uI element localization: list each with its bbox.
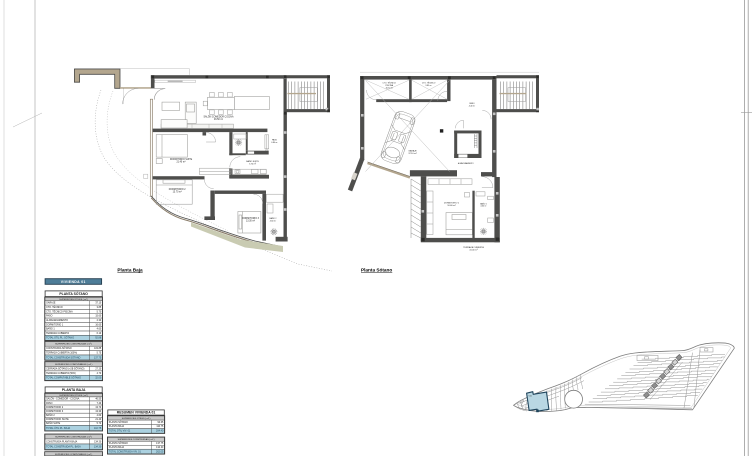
svg-text:TOTAL CONSTRUIDA PL. BAJA: TOTAL CONSTRUIDA PL. BAJA [46, 446, 81, 449]
svg-text:TERRAZA CUBIERTA (100%): TERRAZA CUBIERTA (100%) [46, 352, 77, 355]
svg-text:SALÓN COMEDOR COCINA: SALÓN COMEDOR COCINA [204, 116, 234, 119]
svg-text:DORMITORIO SUITE: DORMITORIO SUITE [170, 159, 193, 161]
svg-text:7.40: 7.40 [97, 403, 102, 405]
svg-text:3.85 m²: 3.85 m² [425, 84, 432, 87]
svg-text:16.60 m²: 16.60 m² [447, 204, 456, 207]
svg-text:GARAJE: GARAJE [46, 302, 56, 305]
svg-text:37.10 m²: 37.10 m² [408, 152, 417, 155]
svg-text:92.88: 92.88 [95, 337, 102, 340]
svg-text:110.75: 110.75 [94, 427, 102, 430]
svg-text:2.30: 2.30 [97, 320, 102, 322]
svg-text:46.50 m²: 46.50 m² [214, 118, 223, 121]
svg-text:41.00 m²: 41.00 m² [469, 249, 478, 252]
svg-text:SUPERFICIES CONSTRUIDAS ( m² ): SUPERFICIES CONSTRUIDAS ( m² ) [55, 343, 92, 346]
svg-text:BAÑO SUITE: BAÑO SUITE [46, 422, 61, 425]
svg-text:13.70 m²: 13.70 m² [173, 191, 182, 194]
svg-text:TOTAL ÚTIL PL. SÓTANO: TOTAL ÚTIL PL. SÓTANO [46, 337, 74, 340]
svg-text:262.05: 262.05 [156, 450, 164, 453]
svg-text:SUPERFICIES CONSTRUIDAS ( m² ): SUPERFICIES CONSTRUIDAS ( m² ) [55, 436, 92, 439]
svg-text:4.40 m²: 4.40 m² [469, 104, 476, 107]
svg-text:PLANTA SÓTANO: PLANTA SÓTANO [59, 291, 88, 296]
svg-text:4.60 m²: 4.60 m² [270, 219, 277, 222]
svg-text:27.20: 27.20 [95, 368, 102, 370]
svg-text:0.80 m²: 0.80 m² [271, 141, 278, 144]
svg-text:10.10 m²: 10.10 m² [386, 86, 394, 89]
svg-text:SUPERFICIES ÚTILES ( m² ): SUPERFICIES ÚTILES ( m² ) [59, 394, 88, 397]
svg-text:BAÑO 2: BAÑO 2 [46, 414, 55, 417]
svg-text:5.75: 5.75 [97, 353, 102, 355]
svg-text:21.40 m²: 21.40 m² [176, 161, 185, 164]
svg-text:DORMITORIO 2: DORMITORIO 2 [169, 189, 187, 191]
svg-text:CONSTRUIDA SÓTANO: CONSTRUIDA SÓTANO [46, 347, 72, 350]
svg-text:DORMITORIO 1: DORMITORIO 1 [46, 324, 64, 326]
svg-text:PLANTA BAJA: PLANTA BAJA [62, 388, 86, 392]
svg-text:Planta Sótano: Planta Sótano [361, 268, 392, 273]
svg-text:3.85: 3.85 [97, 307, 102, 309]
svg-text:BAÑO 1: BAÑO 1 [46, 328, 55, 331]
svg-text:5.70 m²: 5.70 m² [249, 162, 256, 165]
svg-text:4.60 m²: 4.60 m² [480, 205, 486, 208]
svg-text:4.60: 4.60 [97, 329, 102, 331]
svg-text:CERRADA SÓTANO (+2B SÓTANO): CERRADA SÓTANO (+2B SÓTANO) [46, 367, 84, 370]
svg-text:PLANTA SÓTANO: PLANTA SÓTANO [109, 442, 128, 445]
svg-text:TOTAL CONSTRUIDA VIV. 01: TOTAL CONSTRUIDA VIV. 01 [109, 450, 142, 453]
svg-text:TOTAL CONSTRUIDA SÓTANO: TOTAL CONSTRUIDA SÓTANO [46, 356, 80, 359]
svg-text:4.70: 4.70 [97, 373, 102, 375]
svg-text:TERRAZA CUBIERTA (50%): TERRAZA CUBIERTA (50%) [46, 372, 76, 375]
svg-text:93.65: 93.65 [157, 422, 164, 424]
svg-text:TOTAL ÚTIL PL. BAJA: TOTAL ÚTIL PL. BAJA [46, 427, 70, 430]
svg-text:RESUMEN VIVIENDA 01: RESUMEN VIVIENDA 01 [117, 411, 156, 415]
svg-text:SUPERFICIES COMPUTABLES ( m² ): SUPERFICIES COMPUTABLES ( m² ) [55, 453, 93, 456]
svg-text:SUPERFICIES ÚTILES ( m² ): SUPERFICIES ÚTILES ( m² ) [122, 417, 151, 420]
svg-text:PASO: PASO [46, 315, 52, 318]
svg-text:134.30: 134.30 [94, 441, 102, 443]
svg-text:13.30: 13.30 [95, 411, 102, 413]
svg-text:15.60: 15.60 [95, 316, 102, 318]
svg-text:46.50: 46.50 [95, 399, 102, 401]
svg-text:137.75: 137.75 [94, 356, 102, 359]
svg-text:5.70: 5.70 [97, 311, 102, 313]
svg-text:DORMITORIO SUITE: DORMITORIO SUITE [46, 419, 69, 421]
svg-text:ALMACENAMIENTO: ALMACENAMIENTO [46, 319, 68, 322]
svg-text:5.70: 5.70 [97, 423, 102, 425]
svg-text:134.30: 134.30 [94, 446, 102, 449]
svg-text:21.40: 21.40 [95, 419, 102, 421]
svg-text:SUPERFICIES CONSTRUIDAS ( m² ): SUPERFICIES CONSTRUIDAS ( m² ) [118, 438, 155, 441]
svg-text:SUPERFICIES COMPUTABLES ( m² ): SUPERFICIES COMPUTABLES ( m² ) [55, 363, 93, 366]
svg-text:16.60: 16.60 [95, 324, 102, 326]
svg-text:VIVIENDA 01: VIVIENDA 01 [61, 280, 86, 284]
svg-text:DORMITORIO 3: DORMITORIO 3 [242, 218, 260, 220]
svg-text:13.70: 13.70 [95, 407, 102, 409]
svg-text:SUPERFICIES ÚTILES ( m² ): SUPERFICIES ÚTILES ( m² ) [59, 298, 88, 301]
svg-text:SALÓN - COMEDOR - COCINA: SALÓN - COMEDOR - COCINA [46, 398, 80, 401]
svg-text:CONSTRUIDA PLANTA BAJA: CONSTRUIDA PLANTA BAJA [46, 440, 78, 443]
svg-text:13.30 m²: 13.30 m² [246, 220, 255, 223]
svg-text:DORMITORIO 2: DORMITORIO 2 [46, 407, 64, 409]
svg-text:PLANTA BAJA: PLANTA BAJA [109, 446, 125, 449]
svg-text:TERRAZA CUBIERTA: TERRAZA CUBIERTA [46, 332, 69, 335]
svg-text:Planta Baja: Planta Baja [117, 268, 143, 273]
svg-text:37.10: 37.10 [95, 303, 102, 305]
svg-text:6.10: 6.10 [97, 333, 102, 335]
svg-text:PLANTA BAJA: PLANTA BAJA [109, 425, 125, 428]
svg-text:TOTAL COMPUTABLE SÓTANO: TOTAL COMPUTABLE SÓTANO [46, 377, 81, 380]
svg-text:PASO: PASO [46, 402, 52, 405]
svg-text:134.30: 134.30 [156, 447, 164, 449]
svg-text:TOTAL ÚTIL VIV. 01: TOTAL ÚTIL VIV. 01 [109, 430, 131, 433]
svg-text:DORMITORIO 3: DORMITORIO 3 [46, 411, 64, 413]
svg-text:CTO. TÉCNICO PISCINA: CTO. TÉCNICO PISCINA [46, 310, 73, 313]
svg-text:103.85: 103.85 [94, 348, 102, 350]
svg-text:V.01: V.01 [529, 396, 533, 398]
svg-text:PLANTA SÓTANO: PLANTA SÓTANO [109, 421, 128, 424]
svg-text:4.60: 4.60 [97, 415, 102, 417]
svg-text:32.00: 32.00 [95, 377, 102, 380]
svg-text:110.75: 110.75 [156, 426, 164, 428]
svg-text:137.75: 137.75 [156, 443, 164, 445]
svg-text:ALMACENAMIENTO: ALMACENAMIENTO [458, 162, 475, 165]
svg-text:CTO. TÉCNICO: CTO. TÉCNICO [46, 306, 63, 309]
svg-text:204.40: 204.40 [156, 430, 164, 433]
